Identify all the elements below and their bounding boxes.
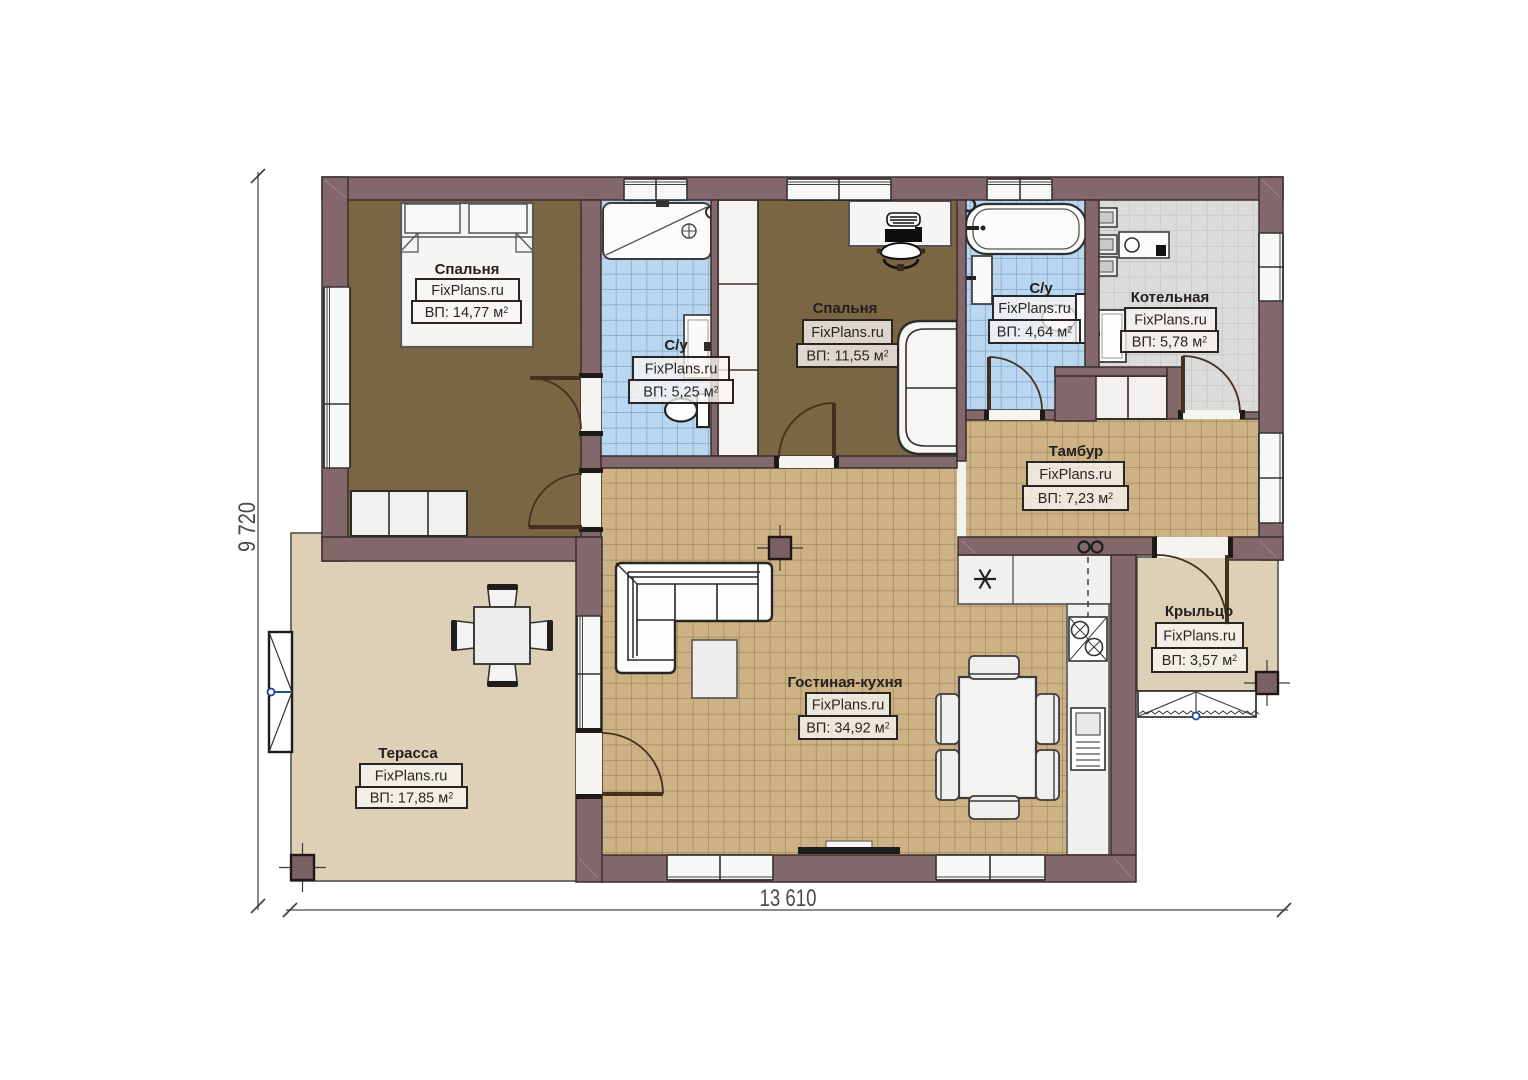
svg-text:ВП: 11,55 м2: ВП: 11,55 м2	[806, 349, 888, 365]
svg-text:ВП: 3,57 м2: ВП: 3,57 м2	[1162, 653, 1237, 669]
svg-text:13 610: 13 610	[760, 885, 817, 912]
svg-text:ВП: 5,25 м2: ВП: 5,25 м2	[643, 385, 718, 401]
svg-text:Котельная: Котельная	[1131, 289, 1210, 306]
svg-text:Спальня: Спальня	[435, 261, 500, 278]
svg-text:FixPlans.ru: FixPlans.ru	[375, 769, 448, 785]
svg-text:Тамбур: Тамбур	[1049, 443, 1103, 460]
svg-text:Терасса: Терасса	[378, 745, 438, 762]
svg-text:FixPlans.ru: FixPlans.ru	[1163, 629, 1236, 645]
svg-text:FixPlans.ru: FixPlans.ru	[1134, 313, 1207, 329]
svg-text:С/у: С/у	[1029, 280, 1053, 297]
svg-text:FixPlans.ru: FixPlans.ru	[812, 698, 885, 714]
svg-text:FixPlans.ru: FixPlans.ru	[431, 283, 504, 299]
svg-text:ВП: 17,85 м2: ВП: 17,85 м2	[370, 791, 453, 807]
svg-text:ВП: 5,78 м2: ВП: 5,78 м2	[1132, 335, 1207, 351]
svg-text:9 720: 9 720	[234, 502, 261, 552]
svg-text:ВП: 14,77 м2: ВП: 14,77 м2	[425, 305, 508, 321]
svg-text:ВП: 7,23 м2: ВП: 7,23 м2	[1038, 491, 1113, 507]
svg-text:ВП: 4,64 м2: ВП: 4,64 м2	[997, 325, 1072, 341]
svg-text:ВП: 34,92 м2: ВП: 34,92 м2	[806, 721, 889, 737]
svg-text:Спальня: Спальня	[813, 300, 878, 317]
svg-text:Гостиная-кухня: Гостиная-кухня	[788, 674, 903, 691]
svg-text:FixPlans.ru: FixPlans.ru	[1039, 467, 1112, 483]
svg-text:FixPlans.ru: FixPlans.ru	[998, 301, 1071, 317]
svg-text:Крыльцо: Крыльцо	[1165, 603, 1233, 620]
svg-text:С/у: С/у	[664, 337, 688, 354]
svg-text:FixPlans.ru: FixPlans.ru	[645, 362, 718, 378]
svg-text:FixPlans.ru: FixPlans.ru	[811, 325, 884, 341]
